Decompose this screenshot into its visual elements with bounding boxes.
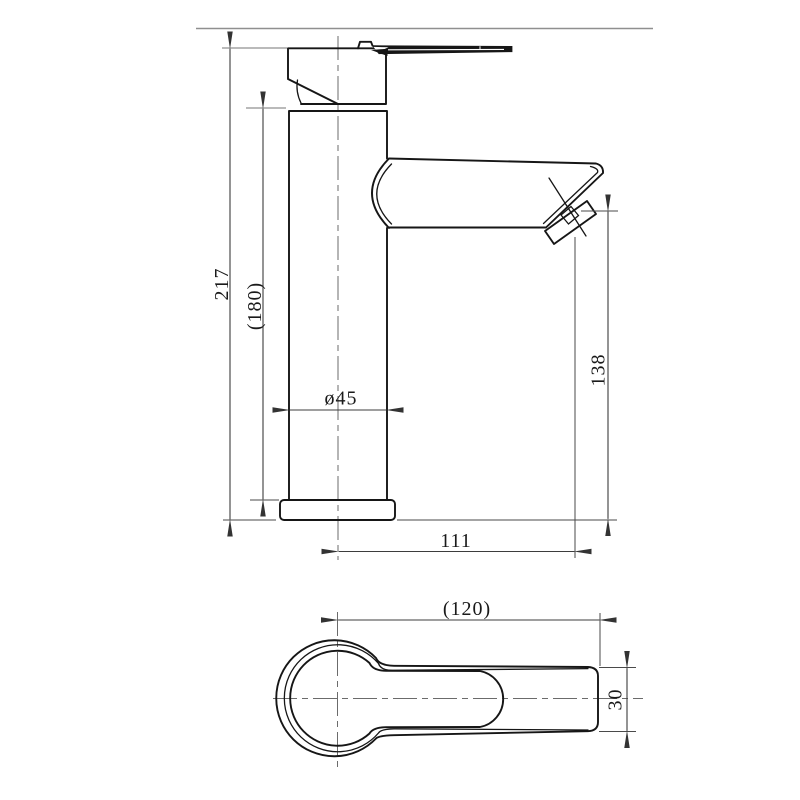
dim-label-height-to-spout-base: (180) — [244, 282, 266, 330]
dimension-handle-width: 30 — [599, 668, 636, 732]
dimension-spout-reach: 111 — [339, 237, 575, 558]
faucet-dimension-drawing: 217 (180) ø45 138 111 — [0, 0, 800, 800]
dim-label-spout-reach: 111 — [440, 530, 472, 552]
front-view — [280, 36, 617, 560]
dim-label-outlet-height: 138 — [588, 354, 610, 387]
dimension-body-diameter: ø45 — [290, 388, 387, 411]
handle-lever-front — [371, 46, 512, 56]
dimensions-front: 217 (180) ø45 138 111 — [211, 48, 618, 558]
top-view — [273, 612, 643, 770]
spout-front — [372, 159, 603, 229]
dimension-overall-length: (120) — [338, 598, 600, 666]
dimension-height-to-spout-base: (180) — [244, 108, 286, 500]
dim-label-overall-length: (120) — [443, 598, 491, 620]
technical-drawing-page: 217 (180) ø45 138 111 — [0, 0, 800, 800]
dim-label-body-diameter: ø45 — [325, 388, 358, 410]
aerator-axis-line — [549, 178, 586, 236]
dimension-outlet-height: 138 — [581, 211, 618, 519]
dim-label-total-height: 217 — [211, 268, 233, 301]
handle-base-front — [288, 42, 386, 104]
dim-label-handle-width: 30 — [605, 689, 627, 711]
